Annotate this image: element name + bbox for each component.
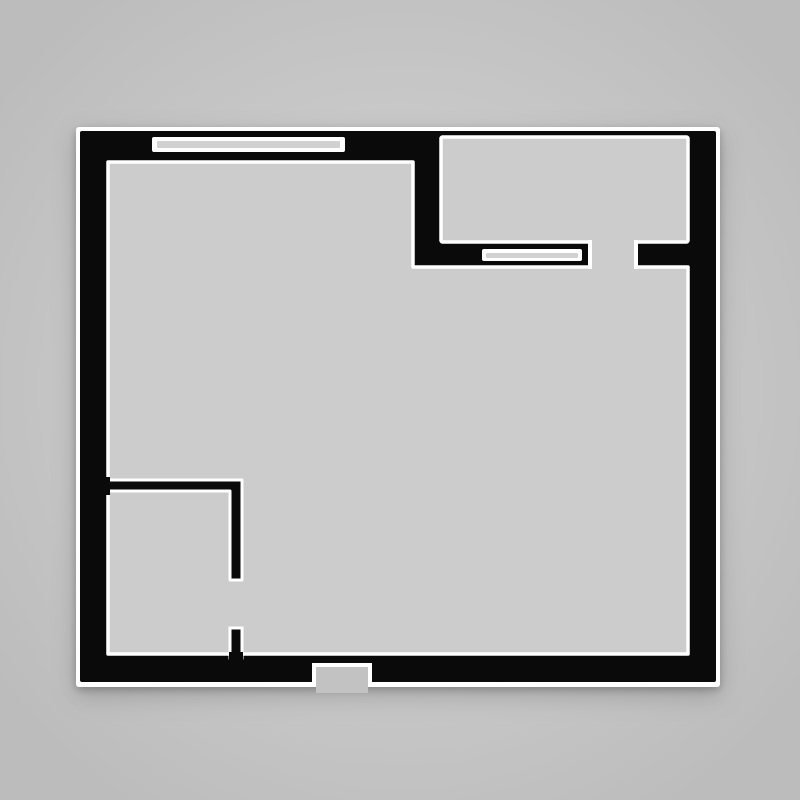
stub-wall-junction [229, 652, 243, 662]
floor-plan-drawing [0, 0, 800, 800]
top-wall-window [152, 137, 345, 152]
top-wall-window-glass [157, 141, 340, 148]
floor-plan-canvas [0, 0, 800, 800]
top-right-room-floor [441, 137, 688, 242]
interior-wall-window-glass [486, 253, 578, 258]
top-right-room-doorway [592, 240, 634, 269]
doorway-jamb-right [634, 240, 638, 269]
interior-wall-window [482, 249, 582, 261]
doorway-jamb-left [588, 240, 592, 269]
entry-opening-floor [316, 667, 368, 693]
bottom-entry-opening [312, 663, 372, 693]
partition-wall-junction [98, 477, 110, 495]
